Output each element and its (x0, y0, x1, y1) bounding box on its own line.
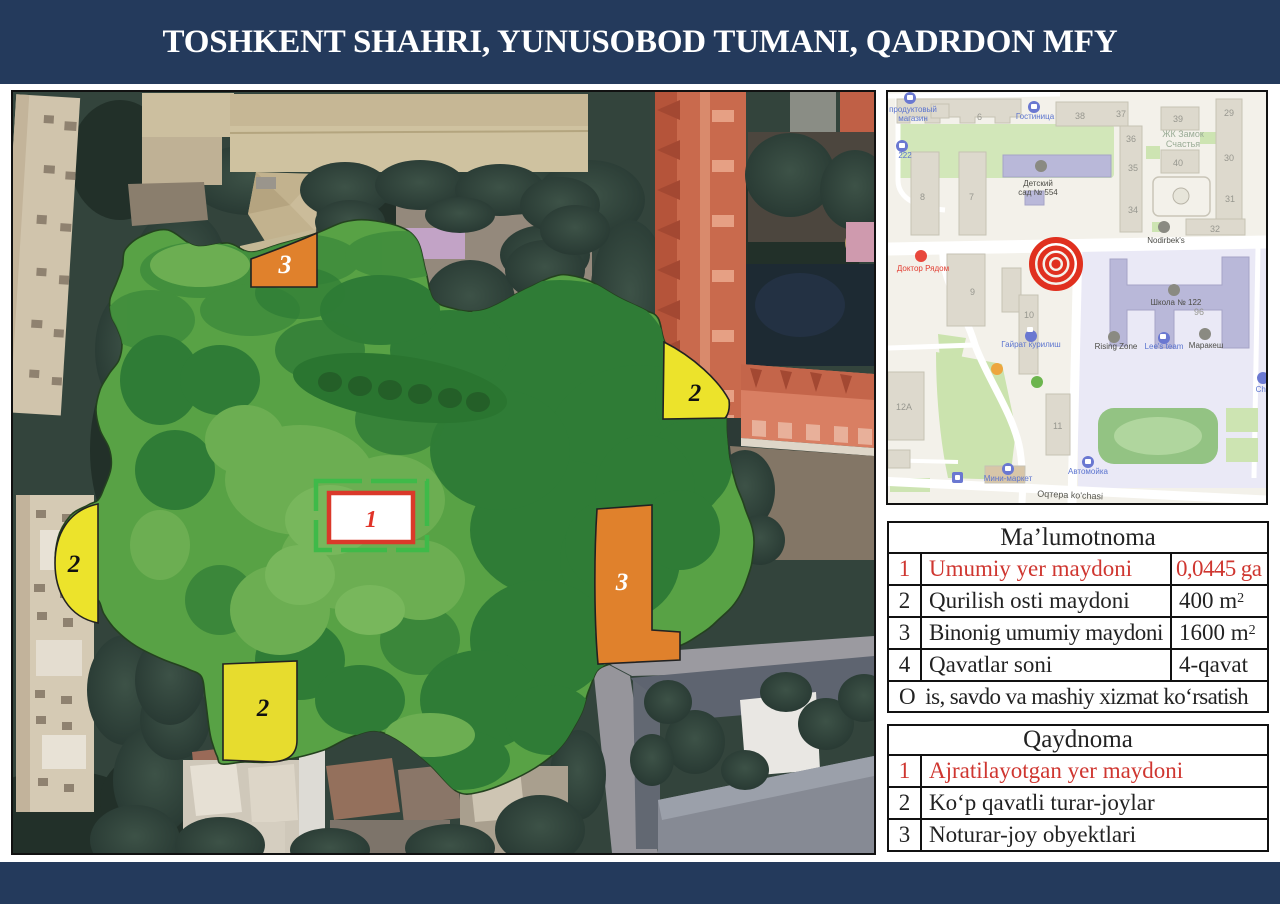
svg-text:31: 31 (1225, 194, 1235, 204)
svg-text:продуктовый: продуктовый (889, 105, 937, 114)
svg-text:12A: 12A (896, 402, 912, 412)
svg-text:32: 32 (1210, 224, 1220, 234)
svg-text:2: 2 (256, 695, 270, 722)
svg-text:1: 1 (365, 507, 377, 533)
svg-text:37: 37 (1116, 109, 1126, 119)
svg-text:Автомойка: Автомойка (1068, 467, 1109, 476)
svg-text:35: 35 (1128, 163, 1138, 173)
svg-text:10: 10 (1024, 310, 1034, 320)
svg-text:8: 8 (920, 192, 925, 202)
svg-text:36: 36 (1126, 134, 1136, 144)
svg-text:39: 39 (1173, 114, 1183, 124)
svg-text:34: 34 (1128, 205, 1138, 215)
svg-text:11: 11 (1053, 421, 1062, 431)
svg-text:96: 96 (1194, 307, 1204, 317)
svg-text:Rising Zone: Rising Zone (1095, 342, 1138, 351)
svg-text:Гостиница: Гостиница (1016, 112, 1055, 121)
svg-text:Школа № 122: Школа № 122 (1151, 298, 1202, 307)
svg-text:29: 29 (1224, 108, 1234, 118)
svg-text:3: 3 (278, 250, 292, 279)
svg-text:2: 2 (67, 551, 81, 578)
svg-text:6: 6 (977, 112, 982, 122)
svg-text:Nodirbek's: Nodirbek's (1147, 236, 1185, 245)
svg-text:ЖК Замок: ЖК Замок (1162, 129, 1204, 139)
svg-text:Мини-маркет: Мини-маркет (984, 474, 1033, 483)
svg-text:2: 2 (688, 380, 702, 407)
svg-text:Детский: Детский (1023, 179, 1053, 188)
svg-text:магазин: магазин (898, 114, 928, 123)
svg-text:3: 3 (615, 569, 629, 596)
svg-text:222: 222 (898, 151, 912, 160)
svg-text:Доктор Рядом: Доктор Рядом (897, 264, 949, 273)
svg-text:Che: Che (1256, 385, 1266, 394)
svg-text:40: 40 (1173, 158, 1183, 168)
svg-text:30: 30 (1224, 153, 1234, 163)
svg-text:7: 7 (969, 192, 974, 202)
svg-text:9: 9 (970, 287, 975, 297)
svg-text:Счастья: Счастья (1166, 139, 1200, 149)
svg-text:сад № 554: сад № 554 (1018, 188, 1058, 197)
svg-text:38: 38 (1075, 111, 1085, 121)
svg-text:Маракеш: Маракеш (1189, 341, 1224, 350)
